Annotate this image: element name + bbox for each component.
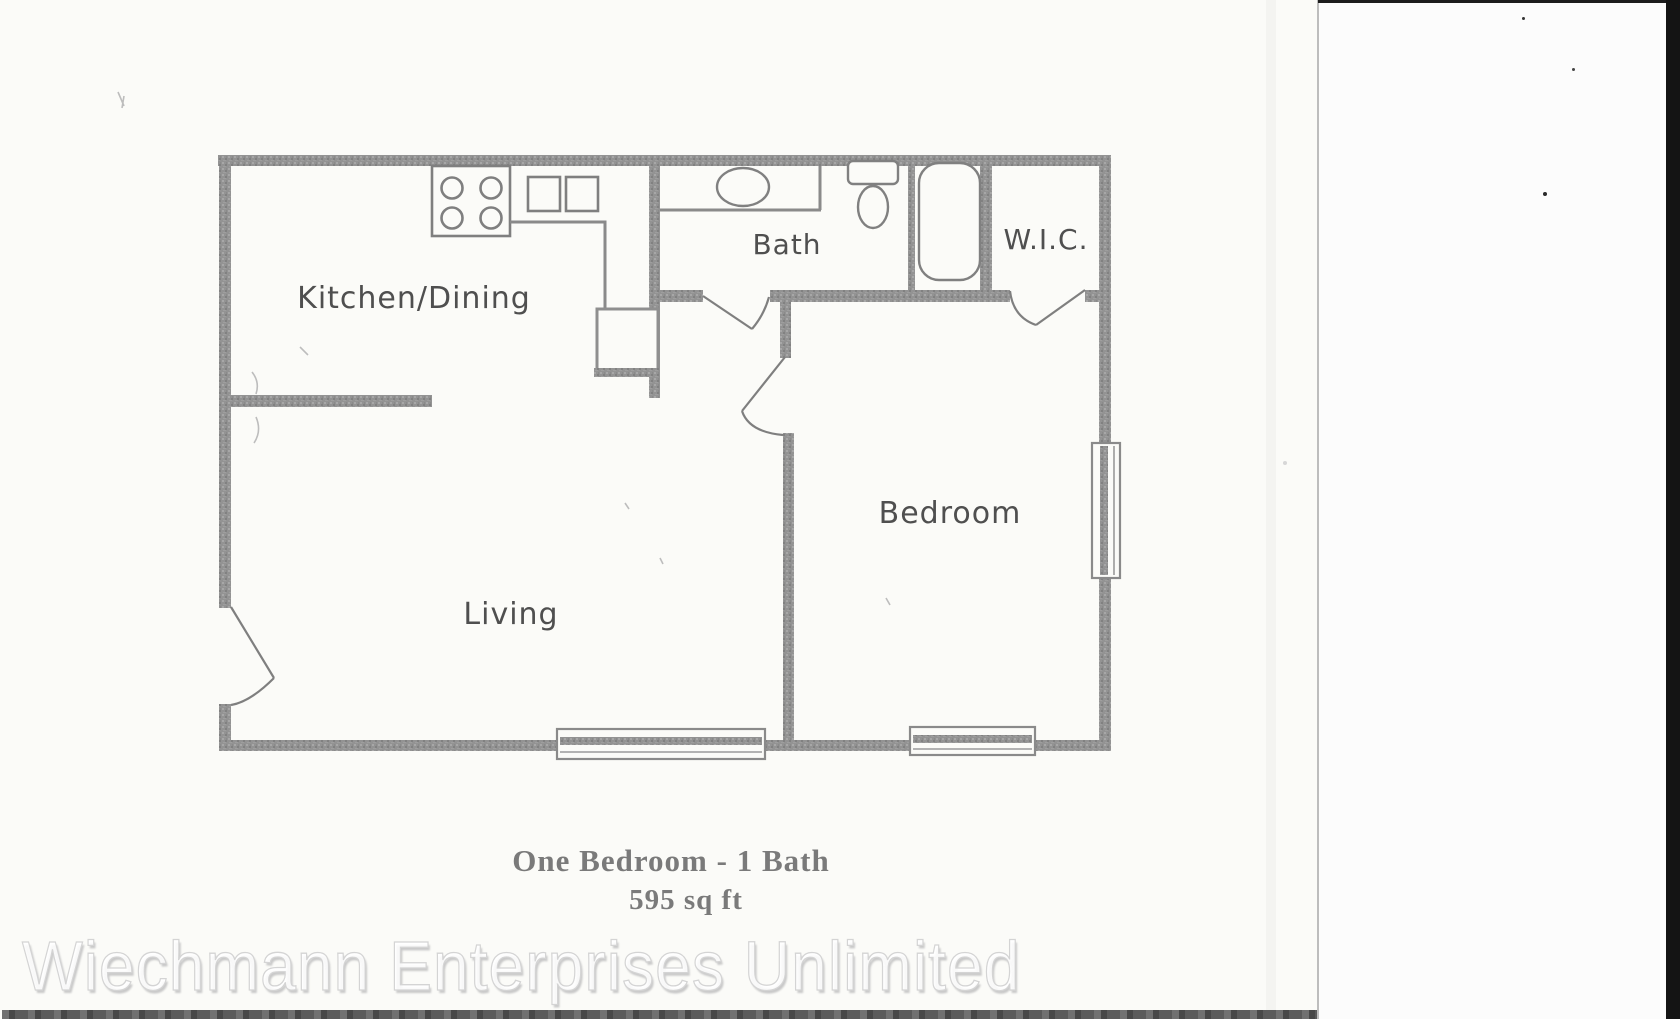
toilet-tank-icon xyxy=(848,161,898,184)
wall-bath-bottom-mid xyxy=(770,290,1010,302)
kitchen-fixtures xyxy=(432,166,598,236)
stove-burner-icon xyxy=(442,178,463,199)
scan-speck xyxy=(1283,461,1287,465)
double-sink-icon xyxy=(566,177,598,211)
scan-artifact xyxy=(886,598,890,605)
floor-plan-drawing: Kitchen/Dining Bath W.I.C. Bedroom Livin… xyxy=(0,0,1680,1019)
stove-burner-icon xyxy=(481,208,502,229)
vanity-sink-icon xyxy=(717,168,769,206)
room-label-living: Living xyxy=(463,597,558,632)
living-window xyxy=(557,729,765,759)
wall-toilet-tub-divider xyxy=(908,160,915,291)
scan-artifact xyxy=(118,92,124,108)
stove-burner-icon xyxy=(442,208,463,229)
wall-bedroom-door-jamb xyxy=(780,290,791,358)
wall-top xyxy=(218,155,1111,166)
bath-fixtures xyxy=(660,161,980,280)
scanned-floorplan-page: Kitchen/Dining Bath W.I.C. Bedroom Livin… xyxy=(0,0,1680,1019)
wall-tub-wic-divider xyxy=(980,160,992,297)
bedroom-door-swing xyxy=(742,357,785,435)
wall-bath-bottom-left xyxy=(649,290,703,302)
bathtub-icon xyxy=(919,163,980,280)
scan-speck xyxy=(1522,17,1525,20)
room-label-bedroom: Bedroom xyxy=(879,496,1022,531)
wic-door-swing xyxy=(1010,290,1085,325)
closet-box-icon xyxy=(597,309,658,371)
bath-door-swing xyxy=(703,296,769,329)
scan-speck xyxy=(1543,192,1547,196)
bedroom-window xyxy=(910,727,1035,755)
wall-left-upper xyxy=(219,155,231,608)
room-labels: Kitchen/Dining Bath W.I.C. Bedroom Livin… xyxy=(297,223,1088,632)
wall-living-bedroom-divider xyxy=(783,433,794,747)
plan-title: One Bedroom - 1 Bath xyxy=(512,843,829,879)
room-label-bath: Bath xyxy=(752,228,821,261)
closet-bottom-wall xyxy=(594,368,660,377)
scan-artifact xyxy=(252,372,257,394)
scan-artifact xyxy=(625,503,663,564)
windows xyxy=(557,443,1120,759)
room-label-wic: W.I.C. xyxy=(1004,223,1089,256)
plan-square-footage: 595 sq ft xyxy=(629,884,743,917)
entry-door-swing xyxy=(231,607,274,705)
scan-bottom-bar xyxy=(2,1010,1317,1019)
company-watermark: Wiechmann Enterprises Unlimited xyxy=(22,930,1020,1004)
toilet-icon xyxy=(858,186,888,228)
room-label-kitchen-dining: Kitchen/Dining xyxy=(297,281,531,316)
scan-speck xyxy=(1572,68,1575,71)
stove-burner-icon xyxy=(481,178,502,199)
wall-kitchen-living-divider xyxy=(219,395,432,407)
bedroom-side-window xyxy=(1092,443,1120,578)
wall-wic-bottom-stub xyxy=(1085,290,1110,302)
double-sink-icon xyxy=(528,177,560,211)
scan-artifact xyxy=(300,347,308,355)
scan-artifact xyxy=(254,417,259,443)
